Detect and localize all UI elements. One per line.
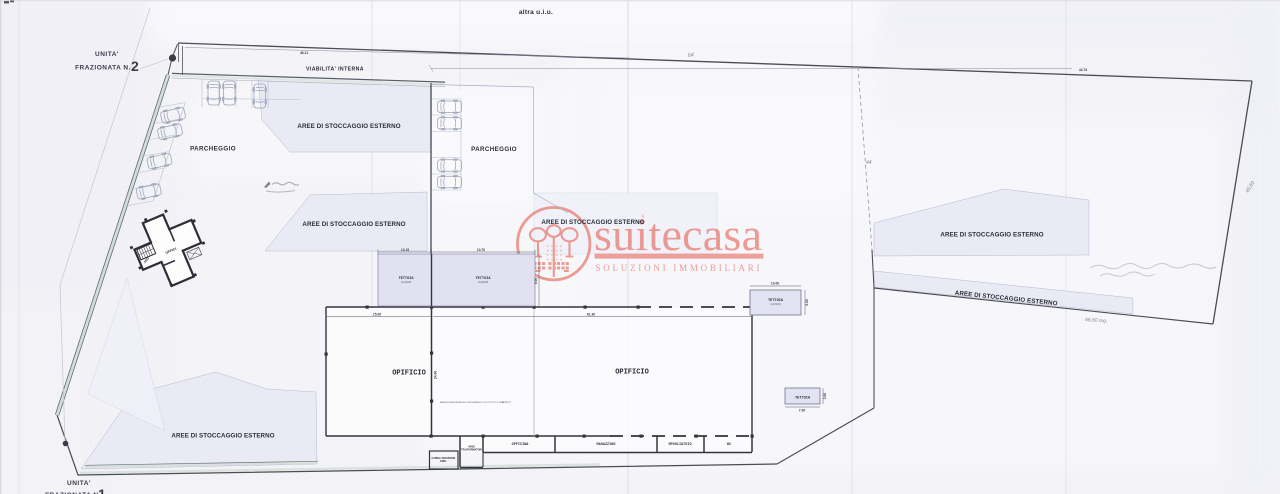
svg-text:VIABILITA' INTERNA: VIABILITA' INTERNA bbox=[306, 67, 364, 73]
svg-text:AREA INTERESSATA DA CONTENIMEN: AREA INTERESSATA DA CONTENIMENTO SOTTOTE… bbox=[440, 401, 509, 404]
svg-text:AREE DI STOCCAGGIO ESTERNO: AREE DI STOCCAGGIO ESTERNO bbox=[297, 123, 400, 130]
svg-text:1: 1 bbox=[98, 486, 106, 494]
svg-text:PARCHEGGIO: PARCHEGGIO bbox=[190, 146, 236, 153]
svg-text:10.00: 10.00 bbox=[771, 282, 779, 286]
svg-text:AREE DI STOCCAGGIO ESTERNO: AREE DI STOCCAGGIO ESTERNO bbox=[940, 232, 1043, 239]
svg-text:2: 2 bbox=[131, 58, 139, 74]
svg-text:7.00: 7.00 bbox=[799, 409, 806, 413]
svg-text:UNITA': UNITA' bbox=[95, 51, 119, 58]
svg-text:suitecasa: suitecasa bbox=[594, 209, 762, 260]
svg-text:TETTOIA: TETTOIA bbox=[795, 397, 811, 401]
svg-text:ENEL: ENEL bbox=[440, 460, 447, 463]
svg-text:mq 64.00: mq 64.00 bbox=[401, 281, 412, 284]
svg-text:15.00: 15.00 bbox=[373, 313, 381, 317]
svg-text:altra u.i.u.: altra u.i.u. bbox=[519, 9, 553, 16]
svg-text:UNITA': UNITA' bbox=[67, 480, 91, 487]
svg-text:MAGAZZINO: MAGAZZINO bbox=[597, 443, 616, 447]
svg-text:5.00: 5.00 bbox=[805, 299, 809, 306]
svg-text:64: 64 bbox=[688, 52, 695, 59]
svg-text:OPIFICIO: OPIFICIO bbox=[392, 370, 426, 378]
svg-text:6.00: 6.00 bbox=[534, 278, 538, 285]
svg-text:AREE DI STOCCAGGIO ESTERNO: AREE DI STOCCAGGIO ESTERNO bbox=[302, 221, 405, 228]
svg-text:44.74: 44.74 bbox=[1079, 68, 1087, 72]
svg-text:13.70: 13.70 bbox=[477, 248, 485, 252]
svg-text:61.30: 61.30 bbox=[587, 313, 595, 317]
svg-text:PARCHEGGIO: PARCHEGGIO bbox=[471, 146, 517, 153]
svg-text:3.00: 3.00 bbox=[823, 393, 827, 400]
svg-text:mq 82.00: mq 82.00 bbox=[478, 281, 489, 284]
svg-text:mq 50.00: mq 50.00 bbox=[771, 303, 782, 306]
svg-text:46.11: 46.11 bbox=[300, 51, 308, 55]
svg-text:TRASFORMATORI: TRASFORMATORI bbox=[461, 449, 482, 452]
svg-text:AREE DI STOCCAGGIO ESTERNO: AREE DI STOCCAGGIO ESTERNO bbox=[541, 219, 644, 226]
svg-text:SPOGLIATOIO: SPOGLIATOIO bbox=[668, 443, 691, 447]
svg-text:OPIFICIO: OPIFICIO bbox=[615, 369, 649, 377]
svg-text:24.60: 24.60 bbox=[434, 371, 438, 379]
svg-text:AREE DI STOCCAGGIO ESTERNO: AREE DI STOCCAGGIO ESTERNO bbox=[171, 433, 274, 440]
svg-text:13.15: 13.15 bbox=[401, 248, 409, 252]
svg-text:OFFICINA: OFFICINA bbox=[512, 443, 530, 447]
svg-text:44: 44 bbox=[866, 160, 872, 166]
svg-text:FRAZIONATA N.: FRAZIONATA N. bbox=[75, 65, 131, 72]
svg-text:WC: WC bbox=[727, 443, 731, 447]
